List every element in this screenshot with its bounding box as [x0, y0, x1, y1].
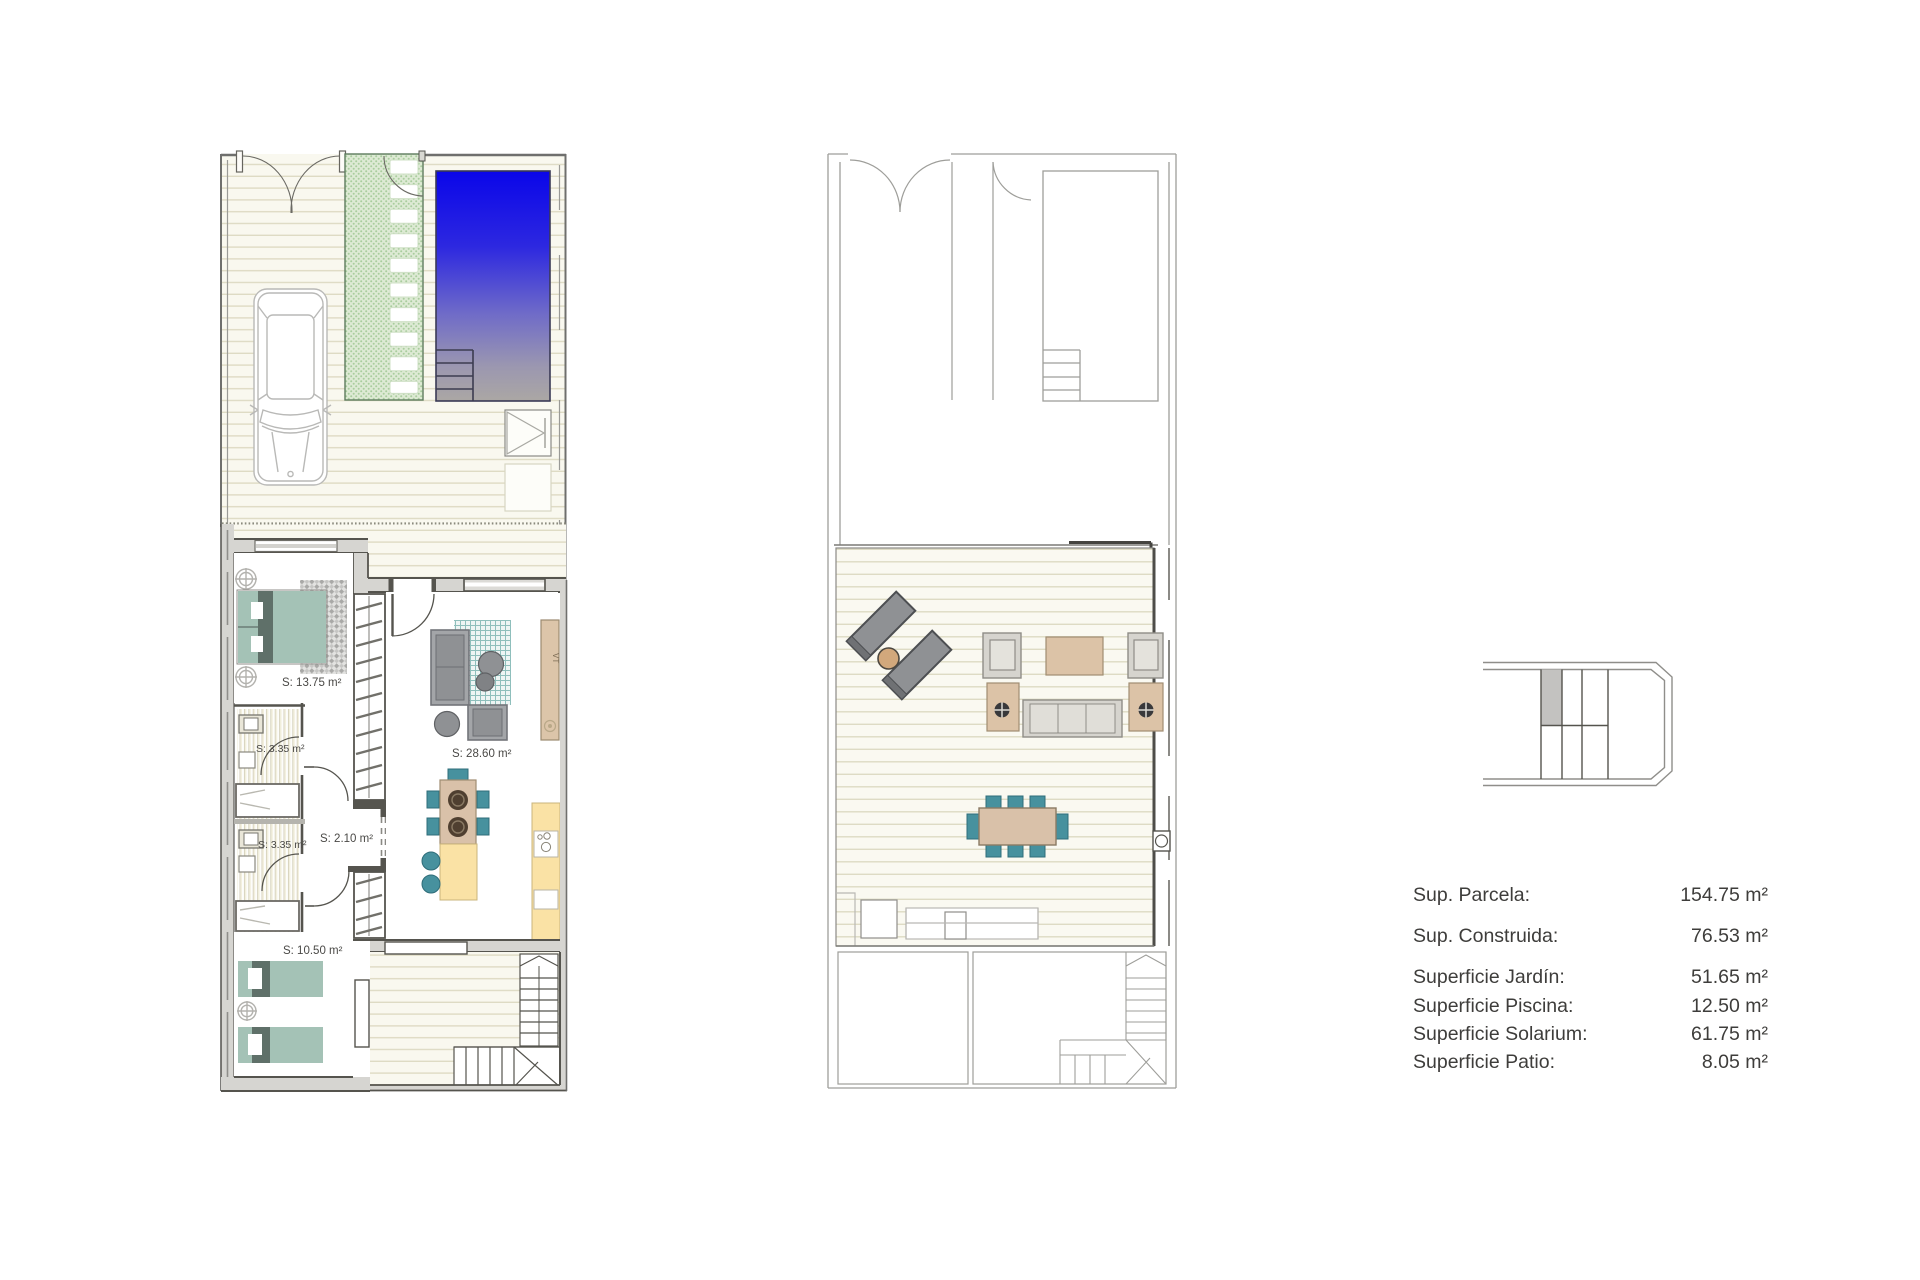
svg-text:Sup. Construida:: Sup. Construida:: [1413, 925, 1558, 947]
svg-text:S: 3.35 m²: S: 3.35 m²: [256, 743, 305, 755]
svg-text:154.75 m²: 154.75 m²: [1680, 884, 1768, 906]
svg-text:Sup. Parcela:: Sup. Parcela:: [1413, 884, 1530, 906]
svg-text:Superficie Piscina:: Superficie Piscina:: [1413, 995, 1573, 1017]
svg-text:S: 28.60 m²: S: 28.60 m²: [452, 748, 512, 760]
svg-text:12.50 m²: 12.50 m²: [1691, 995, 1768, 1017]
svg-text:S: 10.50 m²: S: 10.50 m²: [283, 945, 343, 957]
svg-text:S: 2.10 m²: S: 2.10 m²: [320, 833, 373, 845]
svg-text:S: 3.35 m²: S: 3.35 m²: [258, 839, 307, 851]
svg-text:76.53 m²: 76.53 m²: [1691, 925, 1768, 947]
svg-text:51.65 m²: 51.65 m²: [1691, 966, 1768, 988]
svg-text:VT: VT: [551, 653, 560, 663]
svg-text:Superficie Solarium:: Superficie Solarium:: [1413, 1023, 1588, 1045]
svg-text:S: 13.75 m²: S: 13.75 m²: [282, 677, 342, 689]
svg-text:61.75 m²: 61.75 m²: [1691, 1023, 1768, 1045]
svg-text:Superficie Jardín:: Superficie Jardín:: [1413, 966, 1565, 988]
svg-text:8.05 m²: 8.05 m²: [1702, 1051, 1769, 1073]
svg-text:Superficie Patio:: Superficie Patio:: [1413, 1051, 1555, 1073]
